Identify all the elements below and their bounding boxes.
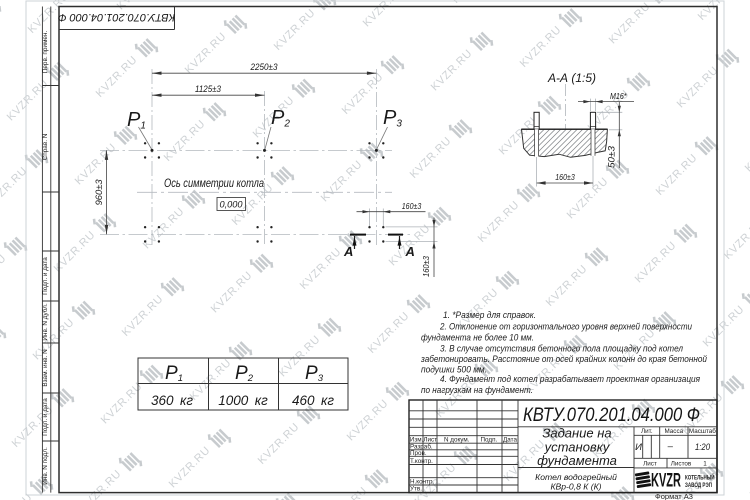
- svg-text:Подп. и дата: Подп. и дата: [42, 257, 49, 295]
- svg-text:Лист: Лист: [423, 437, 437, 444]
- svg-text:360 кг: 360 кг: [151, 393, 193, 408]
- svg-text:ЗАВОД РЭП: ЗАВОД РЭП: [685, 483, 712, 489]
- svg-text:Т.контр.: Т.контр.: [410, 458, 433, 465]
- svg-text:3. В случае отсутствия бетонно: 3. В случае отсутствия бетонного пола пл…: [440, 344, 683, 355]
- svg-text:2. Отклонение от горизонтально: 2. Отклонение от горизонтального уровня …: [439, 322, 692, 333]
- svg-text:забетонировать. Расстояние от: забетонировать. Расстояние от осей крайн…: [420, 354, 707, 365]
- svg-text:фундамента: фундамента: [537, 453, 617, 468]
- svg-text:КОТЕЛЬНЫЙ: КОТЕЛЬНЫЙ: [685, 473, 715, 481]
- svg-text:1: 1: [703, 461, 707, 468]
- svg-text:1000 кг: 1000 кг: [218, 393, 268, 408]
- svg-text:Подп. и дата: Подп. и дата: [42, 398, 49, 436]
- svg-text:И: И: [635, 442, 642, 453]
- svg-text:0,000: 0,000: [220, 200, 244, 211]
- svg-text:Инв. N подл.: Инв. N подл.: [42, 447, 49, 485]
- svg-text:4. Фундамент под котел разраба: 4. Фундамент под котел разрабатывает про…: [440, 374, 700, 385]
- svg-text:Справ. N: Справ. N: [42, 133, 49, 160]
- svg-text:Масса: Масса: [664, 428, 683, 435]
- svg-text:Лист: Лист: [643, 461, 657, 468]
- svg-text:Изм.: Изм.: [410, 437, 424, 444]
- svg-text:фундамента не более 10 мм.: фундамента не более 10 мм.: [421, 333, 534, 344]
- svg-text:160±3: 160±3: [555, 172, 575, 182]
- svg-text:1125±3: 1125±3: [195, 84, 222, 95]
- svg-text:460 кг: 460 кг: [292, 393, 334, 408]
- svg-text:КВТУ.070.201.04.000 Ф: КВТУ.070.201.04.000 Ф: [523, 404, 700, 426]
- svg-text:Пров.: Пров.: [410, 450, 427, 457]
- svg-text:960±3: 960±3: [94, 179, 105, 206]
- svg-text:Подп.: Подп.: [481, 437, 498, 444]
- svg-text:Дата: Дата: [503, 437, 517, 444]
- svg-text:КВр-0,8 К (К): КВр-0,8 К (К): [550, 481, 601, 491]
- svg-text:Листов: Листов: [671, 461, 692, 468]
- svg-text:Формат А3: Формат А3: [655, 492, 693, 500]
- svg-text:M16*: M16*: [610, 91, 627, 101]
- svg-text:Задание на: Задание на: [542, 426, 611, 441]
- svg-text:N докум.: N докум.: [444, 437, 470, 444]
- svg-text:Лит.: Лит.: [641, 428, 653, 435]
- svg-text:KVZR: KVZR: [651, 471, 681, 492]
- svg-text:Инв. N дубл.: Инв. N дубл.: [41, 303, 49, 341]
- svg-text:2250±3: 2250±3: [250, 62, 278, 73]
- svg-text:50±3: 50±3: [607, 145, 618, 168]
- svg-text:A: A: [343, 244, 353, 259]
- svg-text:Взам. инв. N: Взам. инв. N: [42, 349, 49, 387]
- svg-text:160±3: 160±3: [421, 256, 431, 277]
- svg-text:160±3: 160±3: [402, 201, 422, 211]
- svg-text:Масштаб: Масштаб: [689, 427, 716, 435]
- svg-text:по нагрузкам на фундамент.: по нагрузкам на фундамент.: [421, 385, 533, 396]
- svg-text:–: –: [668, 441, 674, 452]
- svg-text:Н.контр.: Н.контр.: [410, 479, 434, 486]
- svg-text:А-А (1:5): А-А (1:5): [547, 71, 596, 85]
- svg-text:1. *Размер для справок.: 1. *Размер для справок.: [443, 310, 536, 321]
- svg-text:Утв.: Утв.: [410, 486, 422, 493]
- svg-text:Ось симметрии котла: Ось симметрии котла: [164, 178, 264, 190]
- svg-text:1:20: 1:20: [695, 442, 711, 453]
- svg-text:Перв. примен.: Перв. примен.: [42, 31, 49, 74]
- svg-text:КВТУ.070.201.04.000 Ф: КВТУ.070.201.04.000 Ф: [58, 11, 176, 23]
- svg-text:A: A: [405, 244, 415, 259]
